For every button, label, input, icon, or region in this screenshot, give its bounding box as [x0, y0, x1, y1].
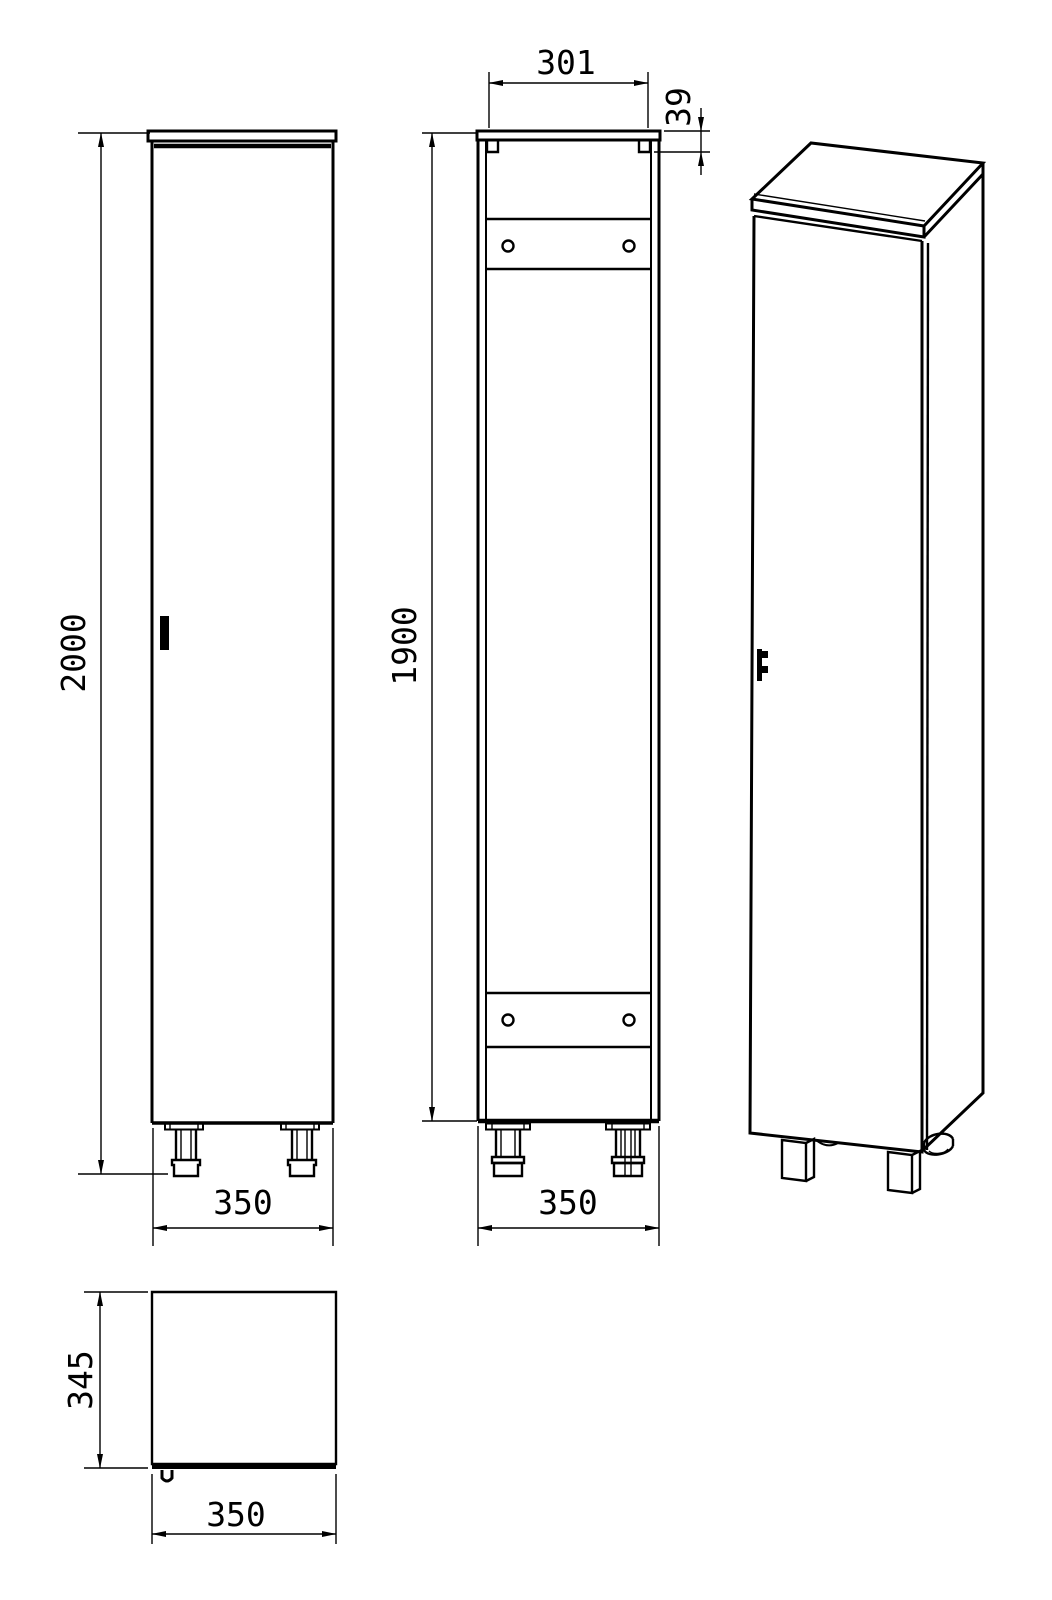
dim-top-depth-label: 345 [61, 1350, 100, 1410]
dim-back-width: 350 [478, 1126, 659, 1246]
back-side-outer-edges [478, 140, 659, 1121]
front-top-panel [148, 131, 336, 141]
back-top-panel [477, 131, 660, 140]
front-left-leg [165, 1124, 203, 1177]
dim-top-depth: 345 [61, 1292, 148, 1468]
dim-top-width: 350 [152, 1474, 336, 1544]
top-view-outline [152, 1292, 336, 1464]
isometric-view [750, 143, 983, 1193]
upper-rail-screw-hole-right [624, 241, 635, 252]
dim-back-top-width-label: 301 [536, 43, 596, 82]
back-left-leg [486, 1124, 530, 1177]
iso-top-face [752, 143, 983, 226]
iso-door-top-edge [754, 216, 922, 241]
dim-back-top-width: 301 [489, 43, 648, 128]
iso-door-handle [757, 649, 768, 681]
top-view: 345 350 [61, 1292, 336, 1544]
dim-front-height-label: 2000 [54, 613, 93, 692]
iso-right-side-panel [923, 174, 983, 1150]
dim-back-height-label: 1900 [385, 606, 424, 685]
back-side-inner-edges [486, 140, 651, 1121]
drawing-canvas: 2000 350 [0, 0, 1052, 1600]
front-side-edges [152, 141, 333, 1123]
lower-rail-screw-hole-left [503, 1015, 514, 1026]
dim-front-width-label: 350 [213, 1183, 273, 1222]
dim-front-width: 350 [153, 1128, 333, 1246]
dim-top-width-label: 350 [206, 1495, 266, 1534]
front-right-leg [281, 1124, 319, 1177]
back-upper-rail [486, 219, 651, 269]
back-view: 301 39 1900 350 [385, 43, 710, 1246]
upper-rail-screw-hole-left [503, 241, 514, 252]
front-view: 2000 350 [54, 131, 336, 1246]
dim-back-notch-depth: 39 [654, 87, 710, 175]
iso-front-right-foot [888, 1151, 920, 1193]
back-right-hanger-notch [639, 141, 650, 152]
back-right-leg [606, 1124, 650, 1177]
back-lower-rail [486, 993, 651, 1047]
lower-rail-screw-hole-right [624, 1015, 635, 1026]
technical-drawing-svg: 2000 350 [0, 0, 1052, 1600]
threaded-rod-lines [625, 1130, 631, 1177]
iso-top-face-inner-edge [754, 194, 925, 221]
dim-back-width-label: 350 [538, 1183, 598, 1222]
dim-back-height: 1900 [385, 133, 477, 1121]
dim-back-notch-depth-label: 39 [659, 87, 698, 127]
iso-door-outline [750, 216, 922, 1152]
iso-front-left-foot [782, 1139, 814, 1181]
iso-cabinet-front-right-edge [927, 243, 928, 1150]
top-view-handle [162, 1470, 172, 1481]
door-handle [160, 616, 169, 650]
back-left-hanger-notch [487, 141, 498, 152]
